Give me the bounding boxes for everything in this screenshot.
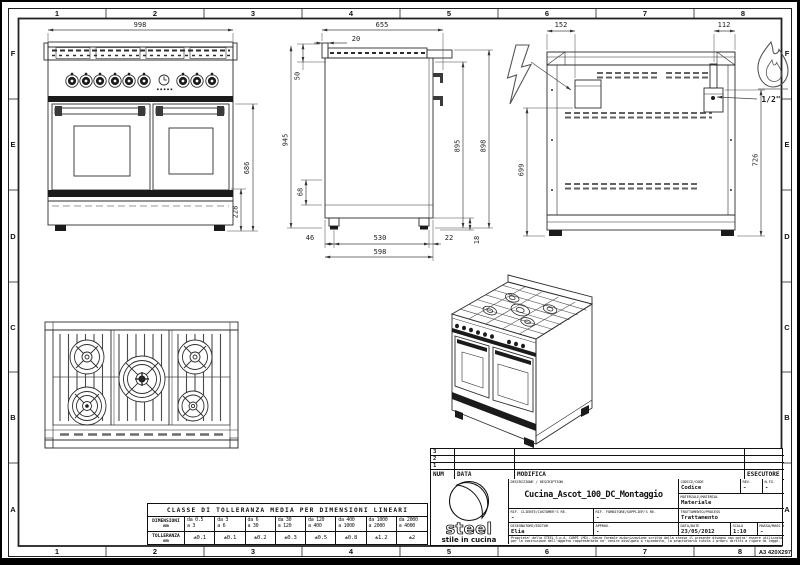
- dim-side-back-gap: 20: [352, 35, 360, 43]
- zone-bottom-7: 7: [643, 547, 647, 556]
- revision-num: 2: [431, 456, 455, 463]
- tolerance-range: da 0.5a 3: [185, 517, 215, 531]
- dim-side-depth: 655: [376, 21, 389, 29]
- scale-cell: SCALA 1:10: [731, 523, 758, 536]
- editor-cell: DISEGNATORE/EDITOR Elia: [509, 523, 594, 536]
- tolerance-value: ±0.8: [336, 531, 366, 545]
- dim-side-height: 945: [282, 134, 290, 147]
- dim-back-elec-height: 699: [518, 164, 526, 177]
- zone-right-a: A: [784, 505, 790, 514]
- logo-tagline: stile in cucina: [442, 536, 497, 544]
- zone-left-d: D: [10, 232, 16, 241]
- zone-top-5: 5: [447, 9, 451, 18]
- dim-side-foot-height: 18: [473, 236, 481, 244]
- zone-top-6: 6: [545, 9, 549, 18]
- description-cell: DESCRIZIONE / DESCRIPTION Cucina_Ascot_1…: [509, 479, 679, 509]
- flame-icon: [758, 42, 788, 89]
- dimension-labels: 998 686 228 655 20 50 945 68 895 898 46 …: [134, 21, 781, 256]
- tolerance-table: CLASSE DI TOLLERANZA MEDIA PER DIMENSION…: [147, 503, 428, 545]
- zone-top-4: 4: [349, 9, 354, 18]
- back-view-dimensions: [523, 31, 765, 236]
- dim-back-gas-offset: 112: [718, 21, 731, 29]
- sheet-format-label: A3 420X297: [759, 550, 791, 556]
- mass-cell: MASSA/MASS kg -: [758, 523, 784, 536]
- dim-side-base-depth: 598: [374, 248, 387, 256]
- zone-bottom-6: 6: [545, 547, 549, 556]
- zone-bottom-8: 8: [738, 547, 742, 556]
- lightning-icon: [508, 45, 532, 104]
- zone-left-a: A: [10, 505, 16, 514]
- approval-cell: APPROV. -: [594, 523, 679, 536]
- dim-front-width: 998: [134, 21, 147, 29]
- material-cell: MATERIALE/MATERIAL Materiale: [679, 494, 784, 509]
- code-cell: CODICE/CODE Codice: [679, 479, 741, 494]
- customer-ref-cell: RIF. CLIENTE/CUSTOMER'S RE. -: [509, 509, 594, 523]
- date-cell: DATA/DATE 23/05/2012: [679, 523, 731, 536]
- isometric-view: [452, 275, 592, 448]
- zone-left-e: E: [10, 140, 15, 149]
- zone-right-b: B: [784, 413, 790, 422]
- tolerance-range: da 2000a 4000: [397, 517, 427, 531]
- dim-back-elec-offset: 152: [555, 21, 568, 29]
- tolerance-table-title: CLASSE DI TOLLERANZA MEDIA PER DIMENSION…: [148, 504, 427, 517]
- dim-side-lower: 68: [297, 188, 305, 196]
- top-view: [45, 322, 238, 448]
- dim-front-oven-height: 686: [243, 162, 251, 175]
- zone-top-3: 3: [251, 9, 255, 18]
- tolerance-value: ±1.2: [367, 531, 397, 545]
- zone-right-f: F: [785, 49, 790, 58]
- tolerance-range: da 120a 400: [306, 517, 336, 531]
- zone-top-8: 8: [741, 9, 745, 18]
- technical-drawing-sheet: 1 2 3 4 5 6 7 8 1 2 3 4 5 6 7 8 F E D C …: [0, 0, 800, 565]
- process-cell: TRATTAMENTO/PROCESS Trattamento: [679, 509, 784, 523]
- tolerance-range: da 400a 1000: [336, 517, 366, 531]
- tolerance-tol-label: TOLLERANZAmm: [148, 531, 185, 545]
- zone-bottom-1: 1: [55, 547, 59, 556]
- zone-bottom-3: 3: [251, 547, 255, 556]
- zone-bottom-4: 4: [349, 547, 354, 556]
- supplier-ref-cell: RIF. FORNITORE/SUPPLIER'S RE. -: [594, 509, 679, 523]
- back-view: [547, 52, 735, 236]
- zone-left-c: C: [10, 323, 16, 332]
- revision-table: 3 2 1 NUM DATA MODIFICA ESECUTORE: [430, 448, 783, 479]
- tolerance-range: da 1000a 2000: [367, 517, 397, 531]
- tolerance-range: da 3a 6: [215, 517, 245, 531]
- front-view: [44, 42, 237, 231]
- steel-logo: steel stile in cucina: [431, 479, 509, 544]
- dim-side-foot-back: 46: [306, 234, 314, 242]
- zone-top-1: 1: [55, 9, 59, 18]
- side-view: [322, 43, 452, 230]
- zone-right-c: C: [784, 323, 790, 332]
- title-block: steel stile in cucina DESCRIZIONE / DESC…: [430, 479, 783, 546]
- tolerance-value: ±0.1: [185, 531, 215, 545]
- zone-left-b: B: [10, 413, 16, 422]
- revision-row: 3: [431, 449, 782, 456]
- dim-side-outer-height: 898: [480, 140, 488, 153]
- revision-num: 3: [431, 449, 455, 456]
- sheet-num-cell: N.FG. -: [763, 479, 784, 494]
- zone-right-e: E: [784, 140, 789, 149]
- tolerance-range: da 6a 30: [246, 517, 276, 531]
- drawing-title: Cucina_Ascot_100_DC_Montaggio: [509, 490, 678, 500]
- zone-top-7: 7: [643, 9, 647, 18]
- revision-num: 1: [431, 463, 455, 470]
- clock-icon: [157, 75, 172, 90]
- dim-side-foot-span: 530: [374, 234, 387, 242]
- dim-side-foot-front: 22: [445, 234, 453, 242]
- rev-cell: REV. -: [741, 479, 763, 494]
- tolerance-value: ±0.1: [215, 531, 245, 545]
- dim-front-drawer-height: 228: [232, 206, 240, 219]
- dim-side-splash: 50: [294, 72, 302, 80]
- tolerance-value: ±0.5: [306, 531, 336, 545]
- gas-connection-label: 1/2": [761, 95, 780, 104]
- zone-top-2: 2: [153, 9, 157, 18]
- tolerance-range: da 30a 120: [276, 517, 306, 531]
- revision-row: 1: [431, 463, 782, 470]
- zone-right-d: D: [784, 232, 790, 241]
- proprietary-notice: Proprieta' della STEEL S.p.A. CARPI (MO)…: [509, 536, 784, 546]
- revision-row: 2: [431, 456, 782, 463]
- tolerance-value: ±0.3: [276, 531, 306, 545]
- dim-side-inner-height: 895: [454, 140, 462, 153]
- zone-left-f: F: [11, 49, 16, 58]
- tolerance-dim-label: DIMENSIONImm: [148, 517, 185, 531]
- description-label: DESCRIZIONE / DESCRIPTION: [509, 479, 678, 485]
- wok-burner: [119, 356, 165, 402]
- tolerance-value: ±0.2: [246, 531, 276, 545]
- zone-bottom-5: 5: [447, 547, 451, 556]
- dim-back-gas-height: 726: [752, 154, 760, 167]
- side-view-dimensions: [287, 30, 493, 261]
- tolerance-value: ±2: [397, 531, 427, 545]
- zone-bottom-2: 2: [153, 547, 157, 556]
